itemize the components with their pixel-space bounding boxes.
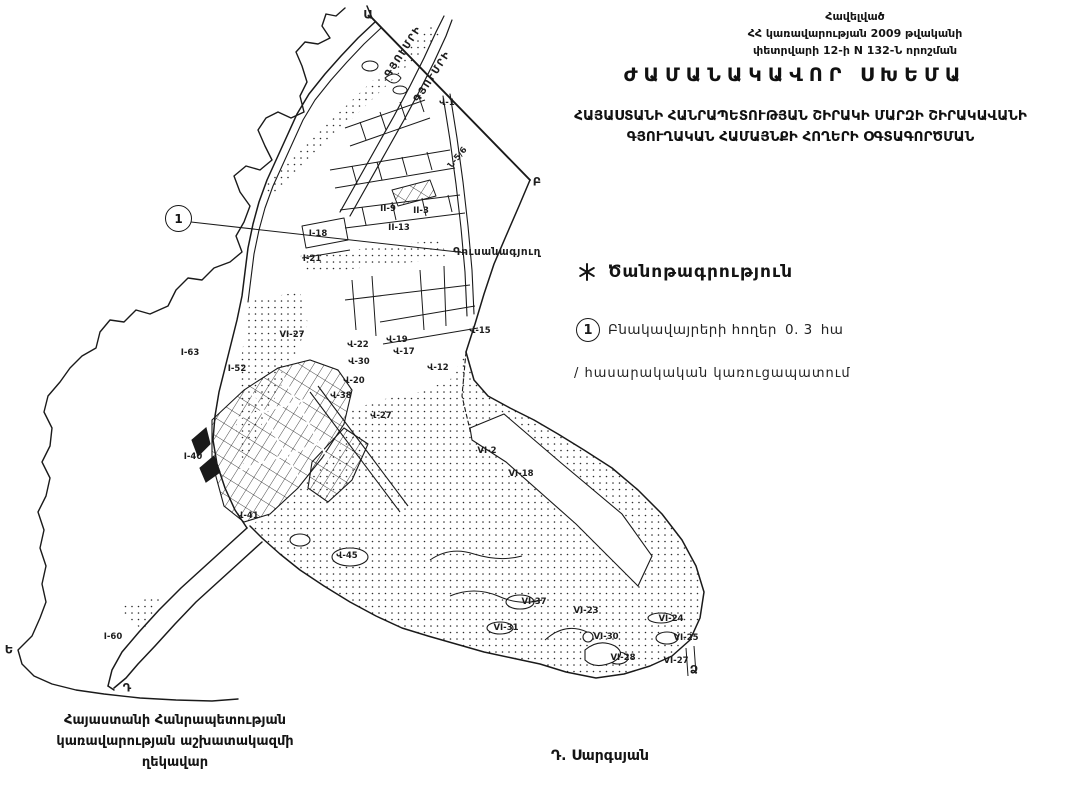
map-parcel-label: Վ-15 — [469, 327, 490, 336]
page-subtitle: ՀԱՅԱՍՏԱՆԻ ՀԱՆՐԱՊԵՏՈՒԹՅԱՆ ՇԻՐԱԿԻ ՄԱՐԶԻ ՇԻ… — [528, 106, 1073, 148]
appendix-reference: Հավելված ՀՀ կառավարության 2009 թվականի փ… — [690, 8, 1020, 59]
map-parcel-label: Վ-30 — [348, 358, 369, 367]
map-parcel-label: Վ-38 — [330, 392, 351, 401]
map-parcel-label: VI-27 — [663, 657, 688, 666]
map-parcel-label: VI-27 — [279, 331, 304, 340]
map-parcel-label: II-13 — [388, 224, 410, 233]
footer-line1: Հայաստանի Հանրապետության — [35, 710, 315, 731]
map-parcel-label: I-40 — [184, 453, 203, 462]
appendix-line3: փետրվարի 12-ի N 132-Ն որոշման — [690, 42, 1020, 59]
map-parcel-label: Վ-22 — [347, 341, 368, 350]
appendix-line1: Հավելված — [690, 8, 1020, 25]
neighbor-village-label: Գուսանագյուղ — [453, 247, 541, 258]
map-parcel-label: VI-37 — [521, 598, 546, 607]
legend-item-public-construction: / հասարակական կառուցապատում — [574, 366, 851, 381]
map-parcel-label: Վ-27 — [370, 412, 391, 421]
map-parcel-label: Վ-1 — [439, 99, 455, 108]
appendix-line2: ՀՀ կառավարության 2009 թվականի — [690, 25, 1020, 42]
subtitle-line2: ԳՅՈՒՂԱԿԱՆ ՀԱՄԱՅՆՔԻ ՀՈՂԵՐԻ ՕԳՏԱԳՈՐԾՄԱՆ — [528, 127, 1073, 148]
map-parcel-label: VI-24 — [658, 615, 683, 624]
road-label-gyumri: ԳՅՈՒՄՐԻ — [413, 50, 453, 105]
map-parcel-label: VI-25 — [673, 634, 698, 643]
footer-line2: կառավարության աշխատակազմի — [35, 731, 315, 752]
map-parcel-label: Վ-12 — [427, 364, 448, 373]
legend-item-residential: 1 Բնակավայրերի հողեր 0. 3 հա — [576, 318, 843, 342]
legend-item1-label: Բնակավայրերի հողեր — [608, 322, 777, 338]
map-parcel-label: Վ-19 — [386, 336, 407, 345]
map-boundary-letter: Ա — [363, 9, 372, 21]
map-parcel-label: I-60 — [104, 633, 123, 642]
map-parcel-label: Ն-5/6 — [447, 146, 469, 170]
map-parcel-label: VI-18 — [508, 470, 533, 479]
map-parcel-label: Վ-41 — [237, 512, 258, 521]
note-star-icon — [578, 263, 596, 281]
signature-name: Դ. Սարգսյան — [455, 748, 745, 764]
map-boundary-letter: Ե — [5, 644, 13, 656]
map-parcel-label: I-18 — [309, 230, 328, 239]
map-parcel-label: VI-30 — [593, 633, 618, 642]
map-parcel-label: I-63 — [181, 349, 200, 358]
legend-item1-value: 0. 3 — [785, 322, 813, 338]
map-boundary-letter: Դ — [123, 682, 131, 694]
map-boundary-letter: Բ — [533, 176, 541, 188]
map-parcel-label: I-52 — [228, 365, 247, 374]
footer-office-block: Հայաստանի Հանրապետության կառավարության ա… — [35, 710, 315, 773]
scanned-map-document: 1 Վ-1Ն-5/6II-9II-3II-13I-18I-21Վ-15VI-27… — [0, 0, 1073, 789]
road-label-gyumri: ԳՅՈՒՄՐԻ — [384, 25, 424, 80]
legend-circle-marker: 1 — [576, 318, 600, 342]
subtitle-line1: ՀԱՅԱՍՏԱՆԻ ՀԱՆՐԱՊԵՏՈՒԹՅԱՆ ՇԻՐԱԿԻ ՄԱՐԶԻ ՇԻ… — [528, 106, 1073, 127]
map-parcel-label: Վ-20 — [343, 377, 364, 386]
map-boundary-letter: Ձ — [690, 664, 698, 676]
map-parcel-label: Վ-45 — [336, 552, 357, 561]
map-parcel-label: II-9 — [380, 205, 396, 214]
page-title: ԺԱՄԱՆԱԿԱՎՈՐ ՍԽԵՄԱ — [540, 64, 1050, 86]
map-parcel-label: I-21 — [303, 255, 322, 264]
map-parcel-label: VI-28 — [610, 654, 635, 663]
map-parcel-label: II-3 — [413, 207, 429, 216]
map-parcel-label: Վ-17 — [393, 348, 414, 357]
map-parcel-label: VI-23 — [573, 607, 598, 616]
map-parcel-label: VI-31 — [493, 624, 518, 633]
note-heading: Ծանոթագրություն — [578, 262, 793, 282]
legend-item1-unit: հա — [821, 322, 844, 338]
map-parcel-label: VI-2 — [477, 447, 496, 456]
footer-line3: ղեկավար — [35, 752, 315, 773]
note-title: Ծանոթագրություն — [608, 262, 793, 282]
